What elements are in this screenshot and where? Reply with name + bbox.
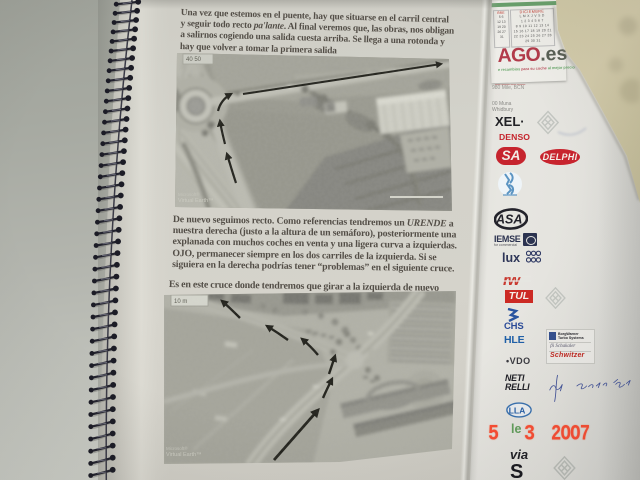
svg-text:rw: rw xyxy=(503,272,522,288)
svg-text:ASA: ASA xyxy=(495,213,522,227)
svg-text:LLA: LLA xyxy=(509,405,527,415)
